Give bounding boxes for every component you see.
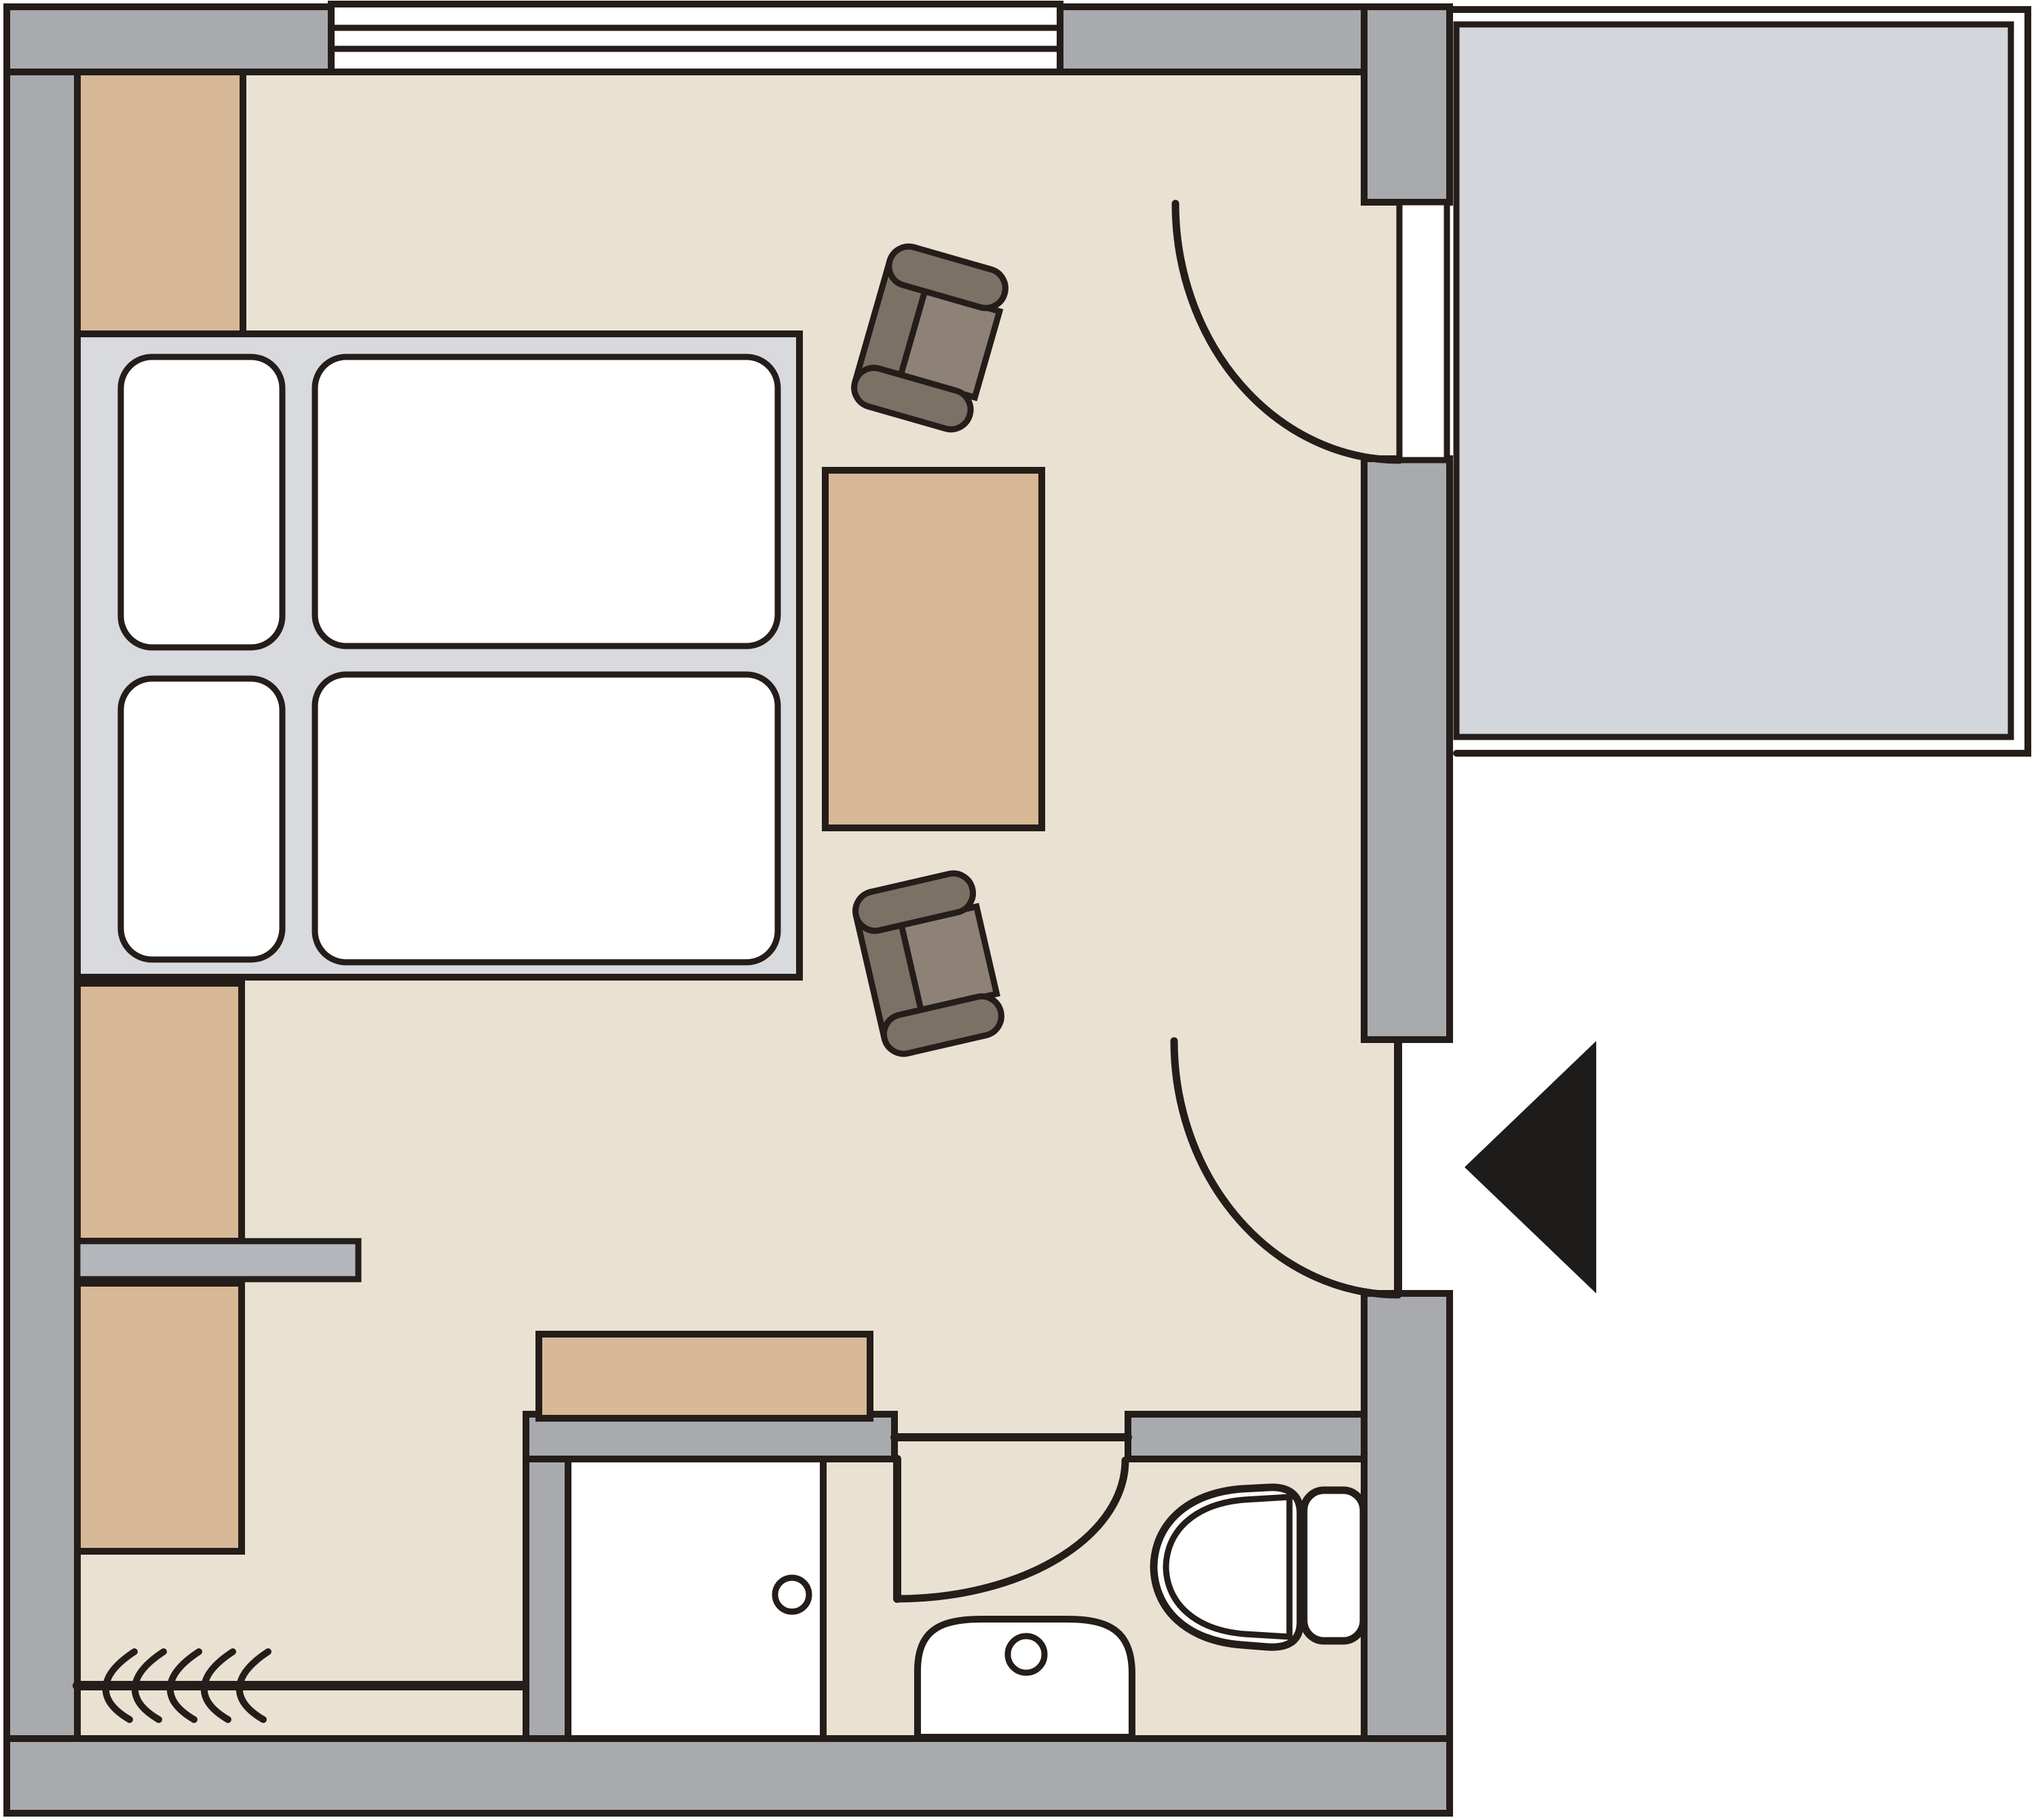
wall-bathroom-north-right	[1128, 1414, 1364, 1459]
floor-balcony-doorway	[1364, 204, 1401, 459]
pillow-top	[121, 357, 282, 647]
sink-faucet	[1008, 1636, 1044, 1673]
mattress-bottom	[315, 675, 778, 962]
shower-door-handle	[775, 1578, 809, 1612]
toilet-bowl	[1154, 1487, 1300, 1647]
pillow-bottom	[121, 679, 282, 960]
wall-top-left	[7, 7, 331, 72]
wall-bottom	[7, 1739, 1450, 1813]
floor-plan-canvas	[0, 0, 2036, 1820]
toilet-tank	[1304, 1490, 1363, 1641]
wall-left	[7, 7, 77, 1813]
wardrobe-middle	[77, 983, 242, 1241]
wall-right-upper	[1364, 7, 1450, 202]
wall-shower-west	[526, 1459, 568, 1739]
coffee-table	[825, 470, 1042, 828]
wardrobe-top-left	[77, 72, 243, 334]
balcony-floor	[1456, 24, 2011, 737]
window	[331, 4, 1060, 72]
entrance-arrow	[1465, 1041, 1596, 1293]
mattress-top	[315, 357, 778, 646]
wardrobe-shelf	[77, 1241, 358, 1279]
balcony-door-leaf	[1399, 202, 1447, 460]
bench	[539, 1334, 870, 1418]
floor-plan	[0, 0, 2036, 1820]
wall-right-lower	[1364, 1293, 1450, 1741]
wardrobe-lower	[77, 1283, 242, 1551]
wall-right-middle	[1364, 459, 1450, 1040]
